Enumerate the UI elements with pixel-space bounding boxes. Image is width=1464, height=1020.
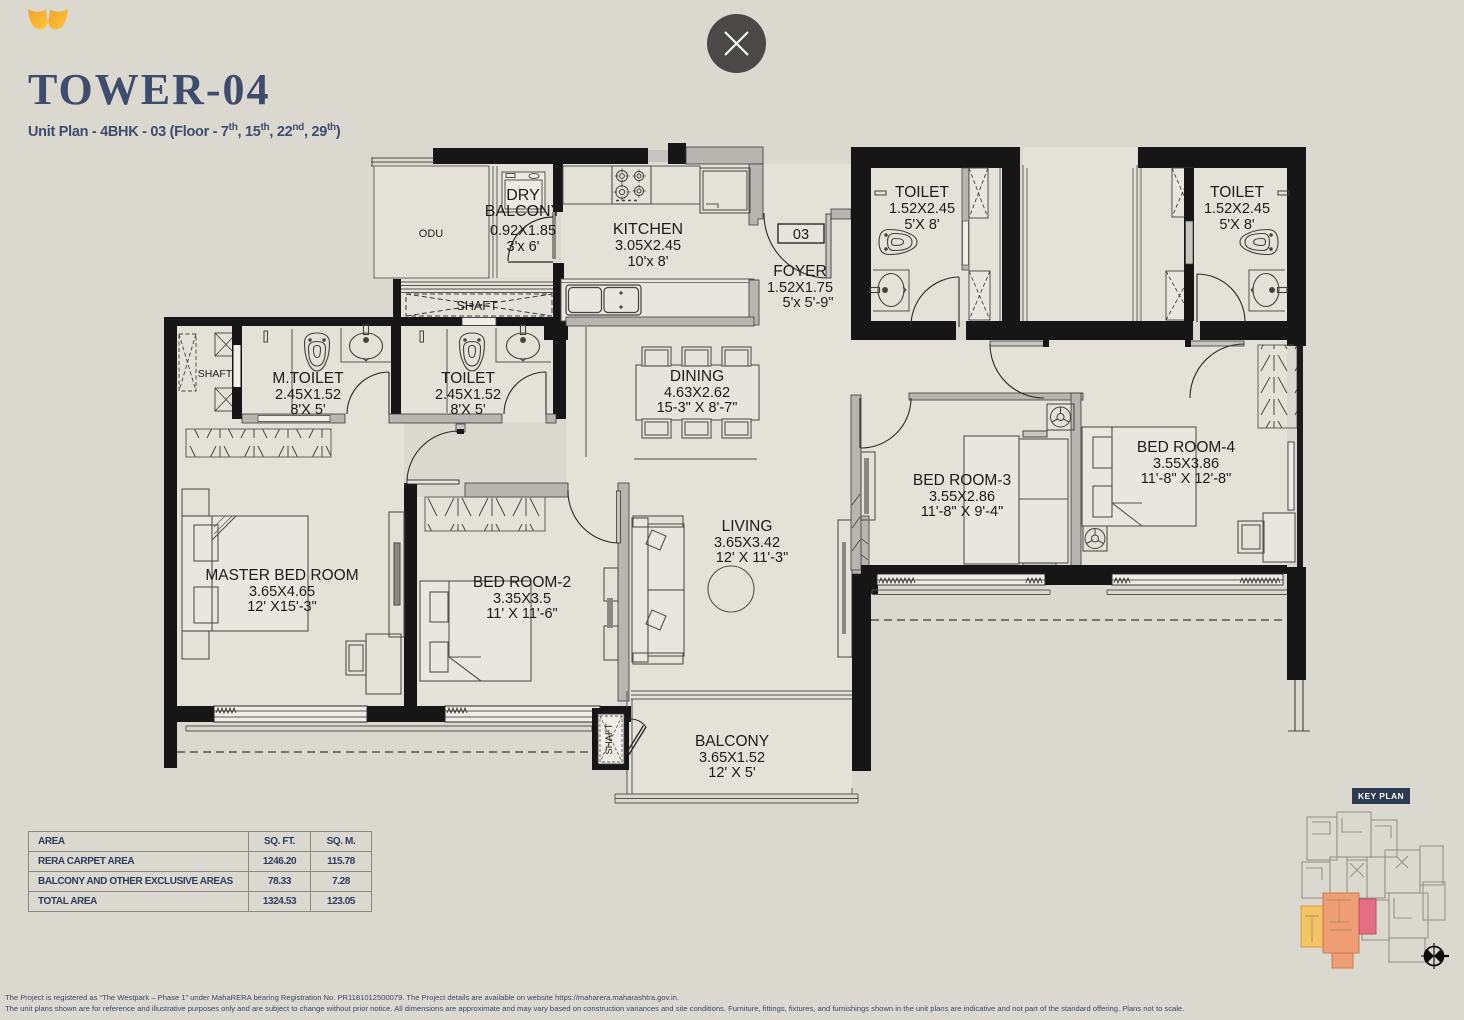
svg-text:1.52X2.45: 1.52X2.45 [889, 201, 955, 217]
svg-text:12' X 11'-3": 12' X 11'-3" [716, 550, 789, 566]
svg-text:KITCHEN: KITCHEN [613, 221, 683, 238]
svg-text:BED ROOM-3: BED ROOM-3 [913, 472, 1011, 489]
svg-text:8'X 5': 8'X 5' [450, 402, 486, 418]
svg-text:FOYER: FOYER [773, 263, 826, 280]
svg-text:3.65X4.65: 3.65X4.65 [249, 584, 315, 600]
svg-text:SHAFT: SHAFT [604, 723, 615, 754]
svg-text:TOILET: TOILET [441, 370, 496, 387]
svg-text:3'x 6': 3'x 6' [507, 239, 540, 255]
svg-text:TOILET: TOILET [1210, 184, 1265, 201]
svg-text:3.65X1.52: 3.65X1.52 [699, 750, 765, 766]
svg-text:BED ROOM-2: BED ROOM-2 [473, 574, 571, 591]
svg-text:0.92X1.85: 0.92X1.85 [490, 223, 556, 239]
svg-text:3.35X3.5: 3.35X3.5 [493, 591, 551, 607]
svg-text:11' X 11'-6": 11' X 11'-6" [486, 606, 557, 622]
svg-text:3.55X2.86: 3.55X2.86 [929, 489, 995, 505]
svg-text:DINING: DINING [670, 368, 724, 385]
svg-text:DRY: DRY [506, 187, 540, 204]
svg-text:ODU: ODU [419, 228, 444, 240]
svg-text:11'-8" X 9'-4": 11'-8" X 9'-4" [921, 504, 1003, 520]
svg-text:3.55X3.86: 3.55X3.86 [1153, 456, 1219, 472]
svg-text:LIVING: LIVING [722, 518, 773, 535]
svg-text:10'x 8': 10'x 8' [627, 254, 668, 270]
svg-text:TOILET: TOILET [895, 184, 950, 201]
svg-text:2.45X1.52: 2.45X1.52 [275, 387, 341, 403]
svg-text:8'X 5': 8'X 5' [290, 402, 326, 418]
svg-text:SHAFT: SHAFT [457, 299, 498, 313]
svg-text:3.05X2.45: 3.05X2.45 [615, 238, 681, 254]
svg-text:BALCONY: BALCONY [695, 733, 769, 750]
svg-text:11'-8" X 12'-8": 11'-8" X 12'-8" [1141, 471, 1232, 487]
svg-text:5'x 5'-9": 5'x 5'-9" [783, 295, 834, 311]
svg-text:1.52X1.75: 1.52X1.75 [767, 280, 833, 296]
svg-text:5'X 8': 5'X 8' [1219, 217, 1255, 233]
svg-text:4.63X2.62: 4.63X2.62 [664, 385, 730, 401]
svg-text:2.45X1.52: 2.45X1.52 [435, 387, 501, 403]
svg-text:3.65X3.42: 3.65X3.42 [714, 535, 780, 551]
svg-text:03: 03 [793, 227, 809, 243]
svg-text:12' X15'-3": 12' X15'-3" [247, 599, 317, 615]
svg-text:MASTER BED ROOM: MASTER BED ROOM [205, 567, 358, 584]
svg-text:BED ROOM-4: BED ROOM-4 [1137, 439, 1236, 456]
svg-text:15-3" X 8'-7": 15-3" X 8'-7" [657, 400, 738, 416]
svg-text:SHAFT: SHAFT [198, 368, 233, 380]
svg-text:1.52X2.45: 1.52X2.45 [1204, 201, 1270, 217]
svg-text:12' X 5': 12' X 5' [708, 765, 756, 781]
svg-text:M.TOILET: M.TOILET [272, 370, 344, 387]
svg-text:5'X 8': 5'X 8' [904, 217, 940, 233]
